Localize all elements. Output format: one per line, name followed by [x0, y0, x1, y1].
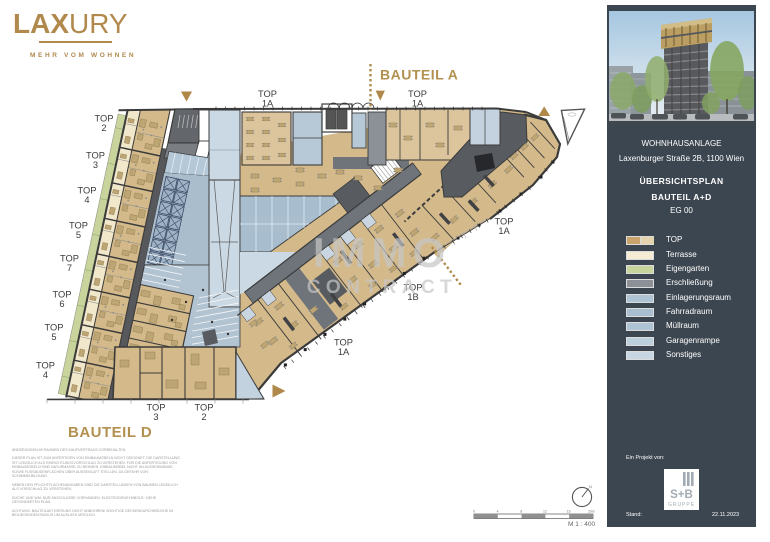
svg-text:BAUTEIL D: BAUTEIL D	[68, 424, 152, 441]
svg-text:3: 3	[93, 160, 98, 170]
svg-text:16: 16	[567, 510, 571, 514]
svg-text:0: 0	[473, 510, 475, 514]
svg-text:TOP: TOP	[86, 151, 105, 161]
svg-text:TOP: TOP	[78, 186, 97, 196]
svg-text:8: 8	[520, 510, 522, 514]
svg-text:1A: 1A	[338, 347, 350, 357]
svg-text:TOP: TOP	[95, 114, 114, 124]
svg-text:GRUPPE: GRUPPE	[668, 502, 695, 508]
svg-text:4: 4	[497, 510, 499, 514]
svg-text:1A: 1A	[412, 99, 424, 109]
svg-text:S+B: S+B	[670, 489, 693, 501]
svg-text:2: 2	[101, 123, 106, 133]
svg-text:TOP: TOP	[45, 323, 64, 333]
svg-text:5: 5	[76, 230, 81, 240]
svg-text:4: 4	[43, 370, 48, 380]
svg-text:7: 7	[67, 263, 72, 273]
svg-text:TOP: TOP	[258, 89, 277, 99]
svg-text:1A: 1A	[262, 99, 274, 109]
svg-text:TOP: TOP	[147, 403, 166, 413]
svg-text:TOP: TOP	[36, 361, 55, 371]
svg-text:1A: 1A	[498, 226, 510, 236]
svg-text:20m: 20m	[588, 510, 595, 514]
svg-text:3: 3	[153, 412, 158, 422]
svg-text:6: 6	[59, 299, 64, 309]
svg-text:5: 5	[51, 332, 56, 342]
svg-text:TOP: TOP	[60, 254, 79, 264]
svg-text:TOP: TOP	[53, 290, 72, 300]
svg-text:TOP: TOP	[69, 221, 88, 231]
svg-text:TOP: TOP	[495, 217, 514, 227]
svg-text:2: 2	[201, 412, 206, 422]
svg-text:12: 12	[543, 510, 547, 514]
svg-text:TOP: TOP	[334, 338, 353, 348]
svg-text:BAUTEIL A: BAUTEIL A	[380, 67, 458, 83]
svg-text:N: N	[589, 484, 592, 489]
svg-text:TOP: TOP	[408, 89, 427, 99]
svg-text:4: 4	[84, 195, 89, 205]
svg-text:TOP: TOP	[195, 403, 214, 413]
